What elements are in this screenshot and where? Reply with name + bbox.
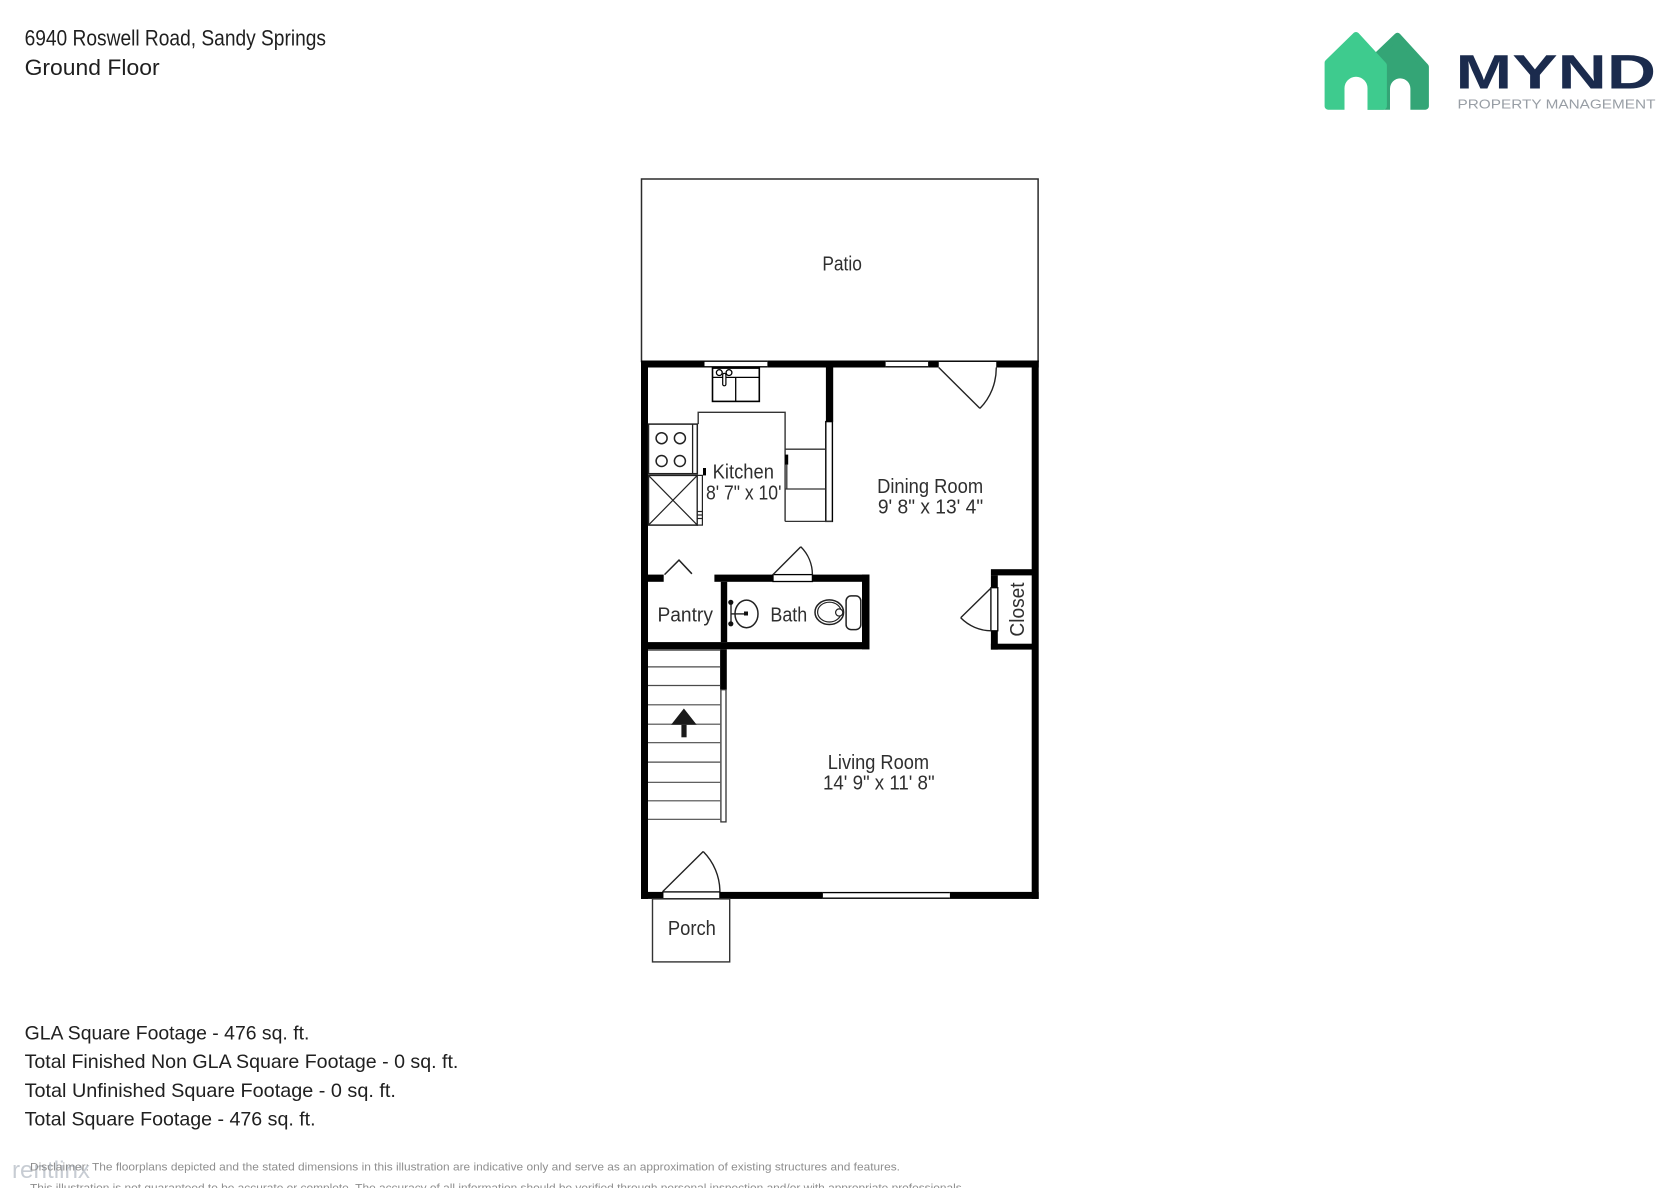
- svg-text:Bath: Bath: [770, 605, 807, 627]
- svg-text:MYND: MYND: [1456, 47, 1657, 100]
- svg-text:Ground Floor: Ground Floor: [25, 55, 160, 80]
- svg-text:Total Finished Non GLA Square: Total Finished Non GLA Square Footage - …: [25, 1051, 459, 1073]
- svg-text:PROPERTY MANAGEMENT: PROPERTY MANAGEMENT: [1458, 97, 1656, 112]
- svg-text:Disclaimer: The floorplans dep: Disclaimer: The floorplans depicted and …: [30, 1162, 900, 1174]
- svg-text:14' 9" x 11' 8": 14' 9" x 11' 8": [823, 773, 935, 795]
- svg-text:Kitchen: Kitchen: [713, 462, 774, 484]
- svg-text:6940 Roswell Road, Sandy Sprin: 6940 Roswell Road, Sandy Springs: [25, 25, 326, 50]
- svg-text:Patio: Patio: [822, 253, 862, 275]
- svg-text:This illustration is not guara: This illustration is not guaranteed to b…: [30, 1183, 965, 1188]
- svg-text:Dining Room: Dining Room: [877, 476, 983, 498]
- svg-text:8' 7" x 10': 8' 7" x 10': [706, 483, 782, 505]
- svg-text:GLA Square Footage - 476 sq. f: GLA Square Footage - 476 sq. ft.: [25, 1023, 310, 1045]
- svg-text:Closet: Closet: [1007, 582, 1029, 637]
- svg-text:Pantry: Pantry: [657, 605, 713, 627]
- svg-text:Porch: Porch: [668, 918, 716, 940]
- svg-text:Living Room: Living Room: [828, 752, 929, 774]
- svg-text:9' 8" x 13' 4": 9' 8" x 13' 4": [878, 496, 983, 518]
- svg-text:Total Square Footage - 476 sq.: Total Square Footage - 476 sq. ft.: [25, 1109, 316, 1131]
- svg-text:Total Unfinished Square Footag: Total Unfinished Square Footage - 0 sq. …: [25, 1080, 396, 1102]
